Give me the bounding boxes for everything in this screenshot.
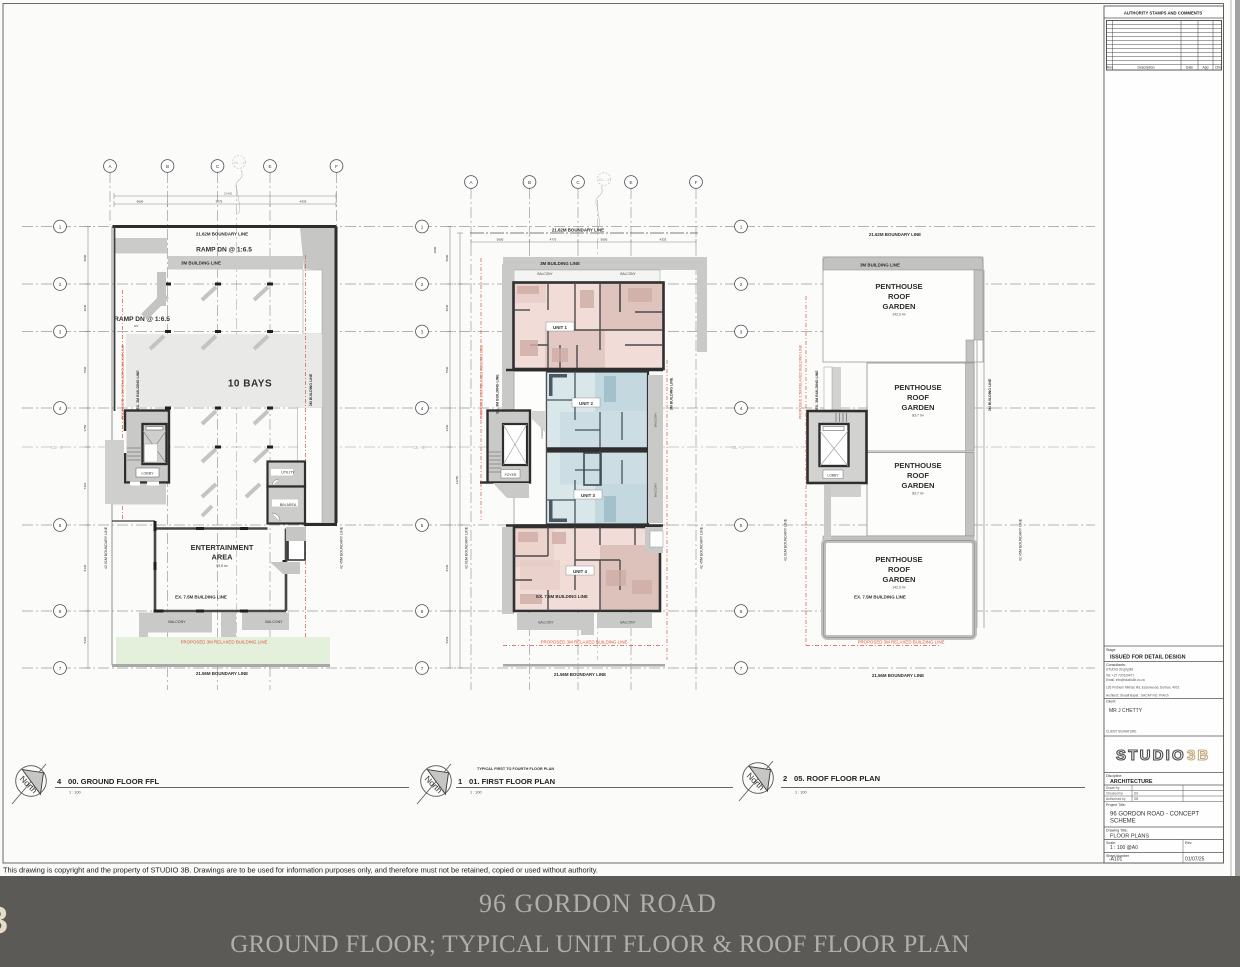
svg-text:1 : 100: 1 : 100 <box>795 791 807 795</box>
svg-text:3: 3 <box>0 900 8 942</box>
svg-text:GARDEN: GARDEN <box>902 403 935 412</box>
svg-text:3: 3 <box>421 329 424 334</box>
svg-text:EX. 7.5M BUILDING LINE: EX. 7.5M BUILDING LINE <box>175 595 227 600</box>
svg-text:CL - 1: CL - 1 <box>599 177 611 182</box>
svg-text:5000: 5000 <box>83 254 87 261</box>
svg-text:42.01M BOUNDARY LINE: 42.01M BOUNDARY LINE <box>104 526 108 569</box>
svg-text:3M BUILDING LINE: 3M BUILDING LINE <box>181 261 221 266</box>
svg-text:10 BAYS: 10 BAYS <box>228 379 272 390</box>
svg-text:4040: 4040 <box>445 304 449 311</box>
svg-text:Project Title:: Project Title: <box>1106 803 1126 807</box>
svg-text:01/07/25: 01/07/25 <box>1185 857 1205 863</box>
svg-text:42.45M BOUNDARY LINE: 42.45M BOUNDARY LINE <box>700 526 704 569</box>
svg-text:2: 2 <box>740 282 743 287</box>
svg-text:SB: SB <box>1134 797 1138 801</box>
svg-text:1 : 100 @A0: 1 : 100 @A0 <box>1110 845 1138 851</box>
svg-text:5363: 5363 <box>445 636 449 643</box>
svg-text:Email: info@studio3b.co.za: Email: info@studio3b.co.za <box>1106 678 1145 682</box>
svg-text:LOBBY: LOBBY <box>142 472 155 476</box>
svg-text:PENTHOUSE: PENTHOUSE <box>875 282 922 291</box>
svg-text:Discipline:: Discipline: <box>1106 774 1122 778</box>
svg-text:4775: 4775 <box>550 238 557 242</box>
svg-text:3B: 3B <box>1187 747 1210 764</box>
svg-text:UNIT 1: UNIT 1 <box>553 325 567 330</box>
svg-text:E: E <box>268 164 271 169</box>
svg-text:STUDIO 3b (pty)ltd: STUDIO 3b (pty)ltd <box>1106 668 1133 672</box>
svg-text:2: 2 <box>783 774 787 783</box>
svg-text:05. ROOF FLOOR PLAN: 05. ROOF FLOOR PLAN <box>794 774 880 783</box>
svg-text:TYPICAL FIRST TO FOURTH FLOOR: TYPICAL FIRST TO FOURTH FLOOR PLAN <box>477 767 554 771</box>
svg-text:Consultants:: Consultants: <box>1106 663 1126 667</box>
svg-text:21.62M BOUNDARY LINE: 21.62M BOUNDARY LINE <box>869 232 921 237</box>
svg-text:11250: 11250 <box>455 476 459 484</box>
svg-text:42.01M BOUNDARY LINE: 42.01M BOUNDARY LINE <box>465 526 469 569</box>
svg-text:PROPOSED 1.5M RELAXED BUILDING: PROPOSED 1.5M RELAXED BUILDING LINE <box>799 344 803 419</box>
svg-text:UNIT 4: UNIT 4 <box>573 569 587 574</box>
svg-text:3M BUILDING LINE: 3M BUILDING LINE <box>540 261 580 266</box>
svg-text:BALCONY: BALCONY <box>537 272 553 276</box>
svg-text:BIN AREA: BIN AREA <box>280 503 297 507</box>
svg-text:CL - 2: CL - 2 <box>732 445 744 450</box>
svg-text:21400: 21400 <box>224 192 233 196</box>
svg-text:1 : 100: 1 : 100 <box>69 791 81 795</box>
svg-text:GARDEN: GARDEN <box>902 481 935 490</box>
svg-text:BALCONY: BALCONY <box>538 621 554 625</box>
svg-text:7: 7 <box>59 666 62 671</box>
svg-text:BALCONY: BALCONY <box>620 621 636 625</box>
svg-text:GARDEN: GARDEN <box>883 575 916 584</box>
svg-text:7: 7 <box>421 666 424 671</box>
svg-text:STUDIO: STUDIO <box>1116 747 1186 764</box>
svg-text:8130: 8130 <box>83 564 87 571</box>
svg-text:EX. 3M BUILDING LINE: EX. 3M BUILDING LINE <box>815 370 819 410</box>
svg-text:CL - 2: CL - 2 <box>413 445 425 450</box>
svg-text:21.56M BOUNDARY LINE: 21.56M BOUNDARY LINE <box>554 672 606 677</box>
svg-text:Tel: +27 737620477: Tel: +27 737620477 <box>1106 674 1134 678</box>
svg-text:3: 3 <box>59 329 62 334</box>
svg-text:21.56M BOUNDARY LINE: 21.56M BOUNDARY LINE <box>872 673 924 678</box>
svg-text:PROPOSED 3M RELAXED BUILDING L: PROPOSED 3M RELAXED BUILDING LINE <box>181 640 268 645</box>
svg-text:9775: 9775 <box>216 200 223 204</box>
svg-text:4: 4 <box>421 406 424 411</box>
svg-text:5000: 5000 <box>601 238 608 242</box>
svg-text:Chk: Chk <box>1215 65 1221 69</box>
svg-text:AUTHORITY STAMPS AND COMMENTS: AUTHORITY STAMPS AND COMMENTS <box>1124 11 1203 16</box>
svg-text:CL - 1: CL - 1 <box>234 160 246 165</box>
svg-text:BALCONY: BALCONY <box>654 483 658 497</box>
svg-text:5600: 5600 <box>497 238 504 242</box>
svg-text:83.7 m²: 83.7 m² <box>912 492 924 496</box>
svg-text:EX. 7.5M BUILDING LINE: EX. 7.5M BUILDING LINE <box>854 595 906 600</box>
svg-text:AREA: AREA <box>212 553 234 562</box>
svg-text:ROOF: ROOF <box>907 471 929 480</box>
svg-text:UTILITY: UTILITY <box>281 471 295 475</box>
svg-text:4333: 4333 <box>660 238 667 242</box>
svg-text:B: B <box>166 164 169 169</box>
svg-text:42.01M BOUNDARY LINE: 42.01M BOUNDARY LINE <box>784 518 788 561</box>
svg-text:00. GROUND FLOOR FFL: 00. GROUND FLOOR FFL <box>68 777 159 786</box>
svg-text:3750: 3750 <box>83 424 87 431</box>
svg-text:7: 7 <box>740 666 743 671</box>
svg-text:3000: 3000 <box>433 246 437 253</box>
svg-text:3M BUILDING LINE: 3M BUILDING LINE <box>860 263 900 268</box>
svg-text:Rev.: Rev. <box>1185 841 1192 845</box>
svg-text:2: 2 <box>59 282 62 287</box>
svg-text:EX. 3M BUILDING LINE: EX. 3M BUILDING LINE <box>136 370 140 410</box>
svg-text:142.3 m²: 142.3 m² <box>892 586 906 590</box>
svg-text:8130: 8130 <box>445 564 449 571</box>
svg-text:3: 3 <box>740 329 743 334</box>
svg-text:4: 4 <box>740 406 743 411</box>
svg-text:5: 5 <box>59 523 62 528</box>
svg-text:PROPOSED 3M RELAXED BUILDING L: PROPOSED 3M RELAXED BUILDING LINE <box>858 640 945 645</box>
svg-text:99.8 m²: 99.8 m² <box>216 564 228 568</box>
svg-text:This drawing is copyright and: This drawing is copyright and the proper… <box>3 866 598 875</box>
svg-text:6: 6 <box>740 609 743 614</box>
svg-text:142.3 m²: 142.3 m² <box>892 313 906 317</box>
svg-text:Rev: Rev <box>1107 65 1113 69</box>
svg-text:2: 2 <box>421 282 424 287</box>
svg-text:CLIENT SIGNATURE: CLIENT SIGNATURE <box>1106 730 1137 734</box>
svg-text:Stage:: Stage: <box>1106 648 1116 652</box>
svg-text:5: 5 <box>421 523 424 528</box>
svg-text:BALCONY: BALCONY <box>265 620 283 624</box>
svg-text:BALCONY: BALCONY <box>654 413 658 427</box>
svg-text:BALCONY: BALCONY <box>168 620 186 624</box>
svg-text:EX. 3M BUILDING LINE: EX. 3M BUILDING LINE <box>496 374 500 414</box>
svg-text:Client:: Client: <box>1106 700 1116 704</box>
svg-text:3M BUILDING LINE: 3M BUILDING LINE <box>988 378 992 411</box>
svg-text:PROPOSED 3M RELAXED BUILDING L: PROPOSED 3M RELAXED BUILDING LINE <box>541 640 628 645</box>
svg-text:DN: DN <box>134 324 138 328</box>
svg-text:PENTHOUSE: PENTHOUSE <box>894 461 941 470</box>
svg-text:ARCHITECTURE: ARCHITECTURE <box>1110 779 1153 785</box>
svg-text:SCHEME: SCHEME <box>1110 819 1136 825</box>
svg-text:3430: 3430 <box>445 424 449 431</box>
svg-text:E: E <box>629 180 632 185</box>
svg-text:21.62M BOUNDARY LINE: 21.62M BOUNDARY LINE <box>196 232 248 237</box>
svg-text:5000: 5000 <box>445 254 449 261</box>
svg-text:Checked by: Checked by <box>1106 792 1123 796</box>
svg-text:1: 1 <box>421 224 424 229</box>
svg-text:Drawn by: Drawn by <box>1106 786 1120 790</box>
svg-text:4333: 4333 <box>300 200 307 204</box>
svg-text:ENTERTAINMENT: ENTERTAINMENT <box>191 543 254 552</box>
svg-text:GROUND FLOOR; TYPICAL UNIT FLO: GROUND FLOOR; TYPICAL UNIT FLOOR & ROOF … <box>230 931 970 958</box>
svg-text:4: 4 <box>59 406 62 411</box>
svg-text:ROOF: ROOF <box>888 292 910 301</box>
svg-text:Drawing Title:: Drawing Title: <box>1106 829 1128 833</box>
svg-text:-A101: -A101 <box>1109 857 1123 863</box>
svg-text:Architect: Shaafi Bayat : SACA: Architect: Shaafi Bayat : SACAP NO. PrAr… <box>1106 694 1169 698</box>
svg-text:LOBBY: LOBBY <box>827 474 839 478</box>
svg-text:F: F <box>335 164 338 169</box>
svg-text:Authorised by: Authorised by <box>1106 797 1126 801</box>
svg-text:GARDEN: GARDEN <box>883 302 916 311</box>
svg-text:F: F <box>695 180 698 185</box>
svg-text:PENTHOUSE: PENTHOUSE <box>894 383 941 392</box>
svg-text:PROPOSED 1.5M RELAXED BUILDING: PROPOSED 1.5M RELAXED BUILDING LINE <box>480 344 484 419</box>
svg-text:7030: 7030 <box>83 366 87 373</box>
svg-text:21.56M BOUNDARY LINE: 21.56M BOUNDARY LINE <box>196 671 248 676</box>
svg-text:Description: Description <box>1138 65 1155 69</box>
svg-text:96 GORDON ROAD - CONCEPT: 96 GORDON ROAD - CONCEPT <box>1110 812 1199 818</box>
svg-text:5363: 5363 <box>83 636 87 643</box>
svg-text:5: 5 <box>740 523 743 528</box>
svg-text:PROPOSED 1.5M RELAXED BUILDING: PROPOSED 1.5M RELAXED BUILDING LINE <box>121 344 125 419</box>
svg-text:126 Problem Mkhize Rd, Essenwo: 126 Problem Mkhize Rd, Essenwood, Durban… <box>1106 686 1180 690</box>
svg-text:ROOF: ROOF <box>907 393 929 402</box>
svg-text:6: 6 <box>59 609 62 614</box>
svg-text:01. FIRST FLOOR PLAN: 01. FIRST FLOOR PLAN <box>469 777 555 786</box>
svg-text:1: 1 <box>59 224 62 229</box>
svg-text:FOYER: FOYER <box>505 473 517 477</box>
svg-text:4040: 4040 <box>83 304 87 311</box>
svg-text:UNIT 3: UNIT 3 <box>581 493 595 498</box>
svg-text:42.45M BOUNDARY LINE: 42.45M BOUNDARY LINE <box>1019 518 1023 561</box>
svg-text:3M BUILDING LINE: 3M BUILDING LINE <box>670 377 674 410</box>
svg-text:3M BUILDING LINE: 3M BUILDING LINE <box>309 373 313 406</box>
svg-text:83.7 m²: 83.7 m² <box>912 414 924 418</box>
svg-text:EX. 7.5M BUILDING LINE: EX. 7.5M BUILDING LINE <box>536 594 588 599</box>
svg-text:MR J CHETTY: MR J CHETTY <box>1109 708 1143 714</box>
svg-text:6000: 6000 <box>137 200 144 204</box>
svg-text:App: App <box>1202 65 1208 69</box>
svg-text:ISSUED FOR DETAIL DESIGN: ISSUED FOR DETAIL DESIGN <box>1110 655 1186 661</box>
svg-text:CL - 2: CL - 2 <box>51 445 63 450</box>
svg-text:1 : 100: 1 : 100 <box>470 791 482 795</box>
svg-text:BALCONY: BALCONY <box>620 272 636 276</box>
svg-text:Date: Date <box>1186 65 1193 69</box>
svg-text:ROOF: ROOF <box>888 565 910 574</box>
svg-text:7030: 7030 <box>445 366 449 373</box>
svg-text:96 GORDON ROAD: 96 GORDON ROAD <box>479 889 717 918</box>
svg-text:B: B <box>528 180 531 185</box>
svg-text:6: 6 <box>421 609 424 614</box>
svg-text:7491: 7491 <box>83 482 87 489</box>
svg-text:1: 1 <box>740 224 743 229</box>
svg-text:PENTHOUSE: PENTHOUSE <box>875 555 922 564</box>
svg-text:42.45M BOUNDARY LINE: 42.45M BOUNDARY LINE <box>340 526 344 569</box>
svg-text:UNIT 2: UNIT 2 <box>579 401 593 406</box>
svg-text:DS: DS <box>1134 792 1138 796</box>
svg-text:RAMP DN @ 1:6.5: RAMP DN @ 1:6.5 <box>196 247 252 254</box>
svg-text:21.62M BOUNDARY LINE: 21.62M BOUNDARY LINE <box>552 228 604 233</box>
svg-text:FLOOR PLANS: FLOOR PLANS <box>1110 834 1149 840</box>
